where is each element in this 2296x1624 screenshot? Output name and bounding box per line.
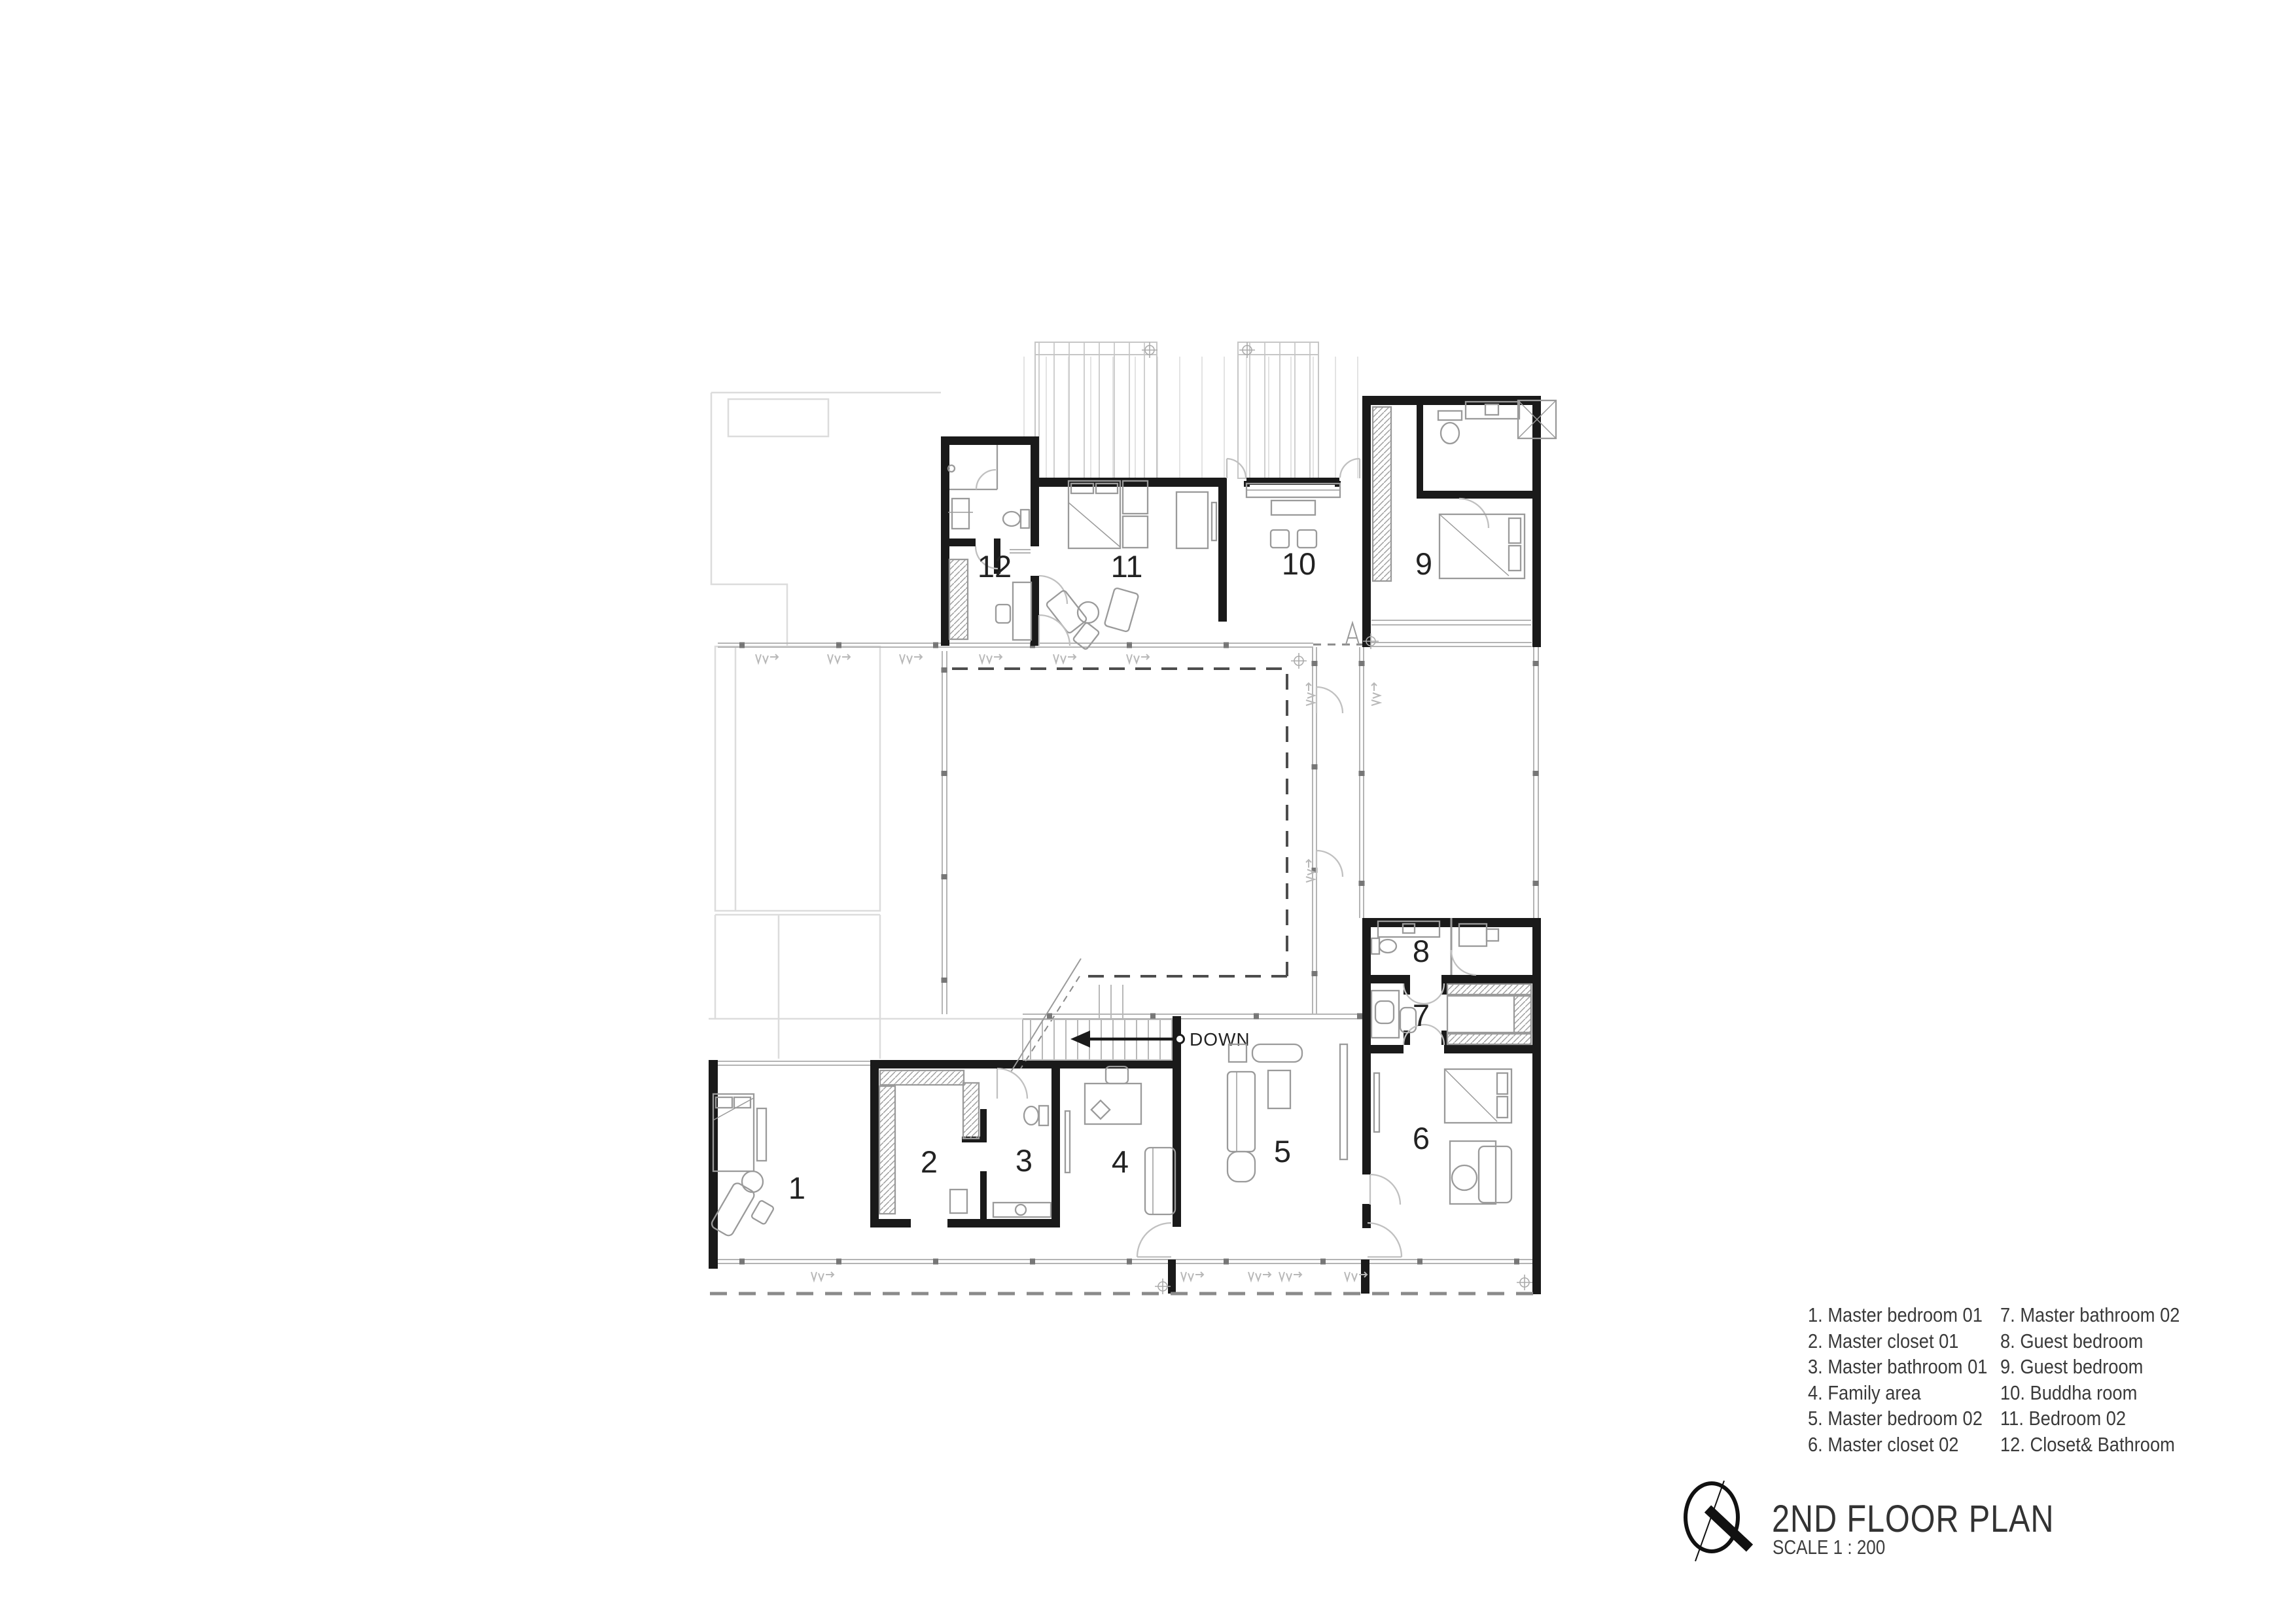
closet-hanger-strip <box>879 1086 895 1214</box>
legend-item: 3. Master bathroom 01 <box>1808 1354 1977 1380</box>
side-table-icon <box>742 1171 763 1192</box>
room-1-furniture <box>710 1094 774 1237</box>
closet-hanger-strip <box>1373 407 1391 581</box>
stool-icon <box>950 1190 967 1213</box>
tv-panel-icon <box>1065 1111 1070 1173</box>
tv-cabinet-icon <box>1340 1044 1347 1159</box>
roof-panel-west <box>1035 342 1157 478</box>
room-legend: 1. Master bedroom 01 2. Master closet 01… <box>1808 1302 2204 1457</box>
room-label-8: 8 <box>1413 934 1430 968</box>
legend-item: 8. Guest bedroom <box>2000 1328 2180 1354</box>
room-label-2: 2 <box>921 1144 938 1179</box>
room-label-12: 12 <box>978 549 1012 584</box>
legend-item: 12. Closet& Bathroom <box>2000 1432 2180 1458</box>
floor-plan-page: { "plan": { "down_label": "DOWN", "rooms… <box>0 0 2296 1624</box>
legend-item: 5. Master bedroom 02 <box>1808 1405 1977 1432</box>
down-arrow <box>1070 1031 1184 1048</box>
corridor-door-arcs <box>1316 687 1343 877</box>
room-label-5: 5 <box>1274 1134 1291 1169</box>
bench-icon <box>757 1108 766 1161</box>
chair-icon <box>1106 1067 1128 1084</box>
bed-icon <box>713 1094 754 1171</box>
coffee-table-icon <box>1268 1070 1290 1108</box>
toilet-icon <box>1024 1106 1048 1125</box>
roof-panel-east <box>1238 342 1318 478</box>
toilet-icon <box>1371 938 1396 954</box>
floor-cushion-icon <box>1271 530 1289 548</box>
room-label-7: 7 <box>1413 998 1430 1033</box>
roof-edge-dashed <box>710 644 1541 1294</box>
room-label-1: 1 <box>788 1171 805 1205</box>
roof-stripe-area <box>1017 342 1362 478</box>
room-label-4: 4 <box>1112 1144 1129 1179</box>
chair-icon <box>1487 929 1498 941</box>
floor-cushion-icon <box>1298 530 1316 548</box>
room-label-9: 9 <box>1415 546 1432 581</box>
legend-item: 4. Family area <box>1808 1380 1977 1406</box>
legend-column-2: 7. Master bathroom 02 8. Guest bedroom 9… <box>2000 1302 2204 1457</box>
side-table-icon <box>1452 1165 1477 1190</box>
closet-hanger-strip <box>949 559 968 639</box>
courtyard-dashed-outline <box>952 669 1287 976</box>
room-6-furniture <box>1370 1069 1511 1205</box>
desk-icon <box>1085 1084 1141 1124</box>
closet-hanger-strip <box>1447 984 1531 995</box>
room-label-6: 6 <box>1413 1121 1430 1156</box>
legend-item: 6. Master closet 02 <box>1808 1432 1977 1458</box>
room-label-10: 10 <box>1282 546 1316 581</box>
sofa-icon <box>1227 1072 1255 1182</box>
desk-icon <box>1459 924 1487 946</box>
tv-panel-icon <box>1374 1073 1379 1132</box>
closet-hanger-strip <box>880 1070 964 1085</box>
room-7-fixtures <box>1371 983 1531 1045</box>
legend-column-1: 1. Master bedroom 01 2. Master closet 01… <box>1808 1302 2000 1457</box>
compass-north-icon <box>1680 1474 1769 1576</box>
drawing-title: 2ND FLOOR PLAN <box>1772 1497 2054 1541</box>
sink-icon <box>1375 1001 1394 1023</box>
sofa-icon <box>1145 1148 1175 1214</box>
legend-item: 11. Bedroom 02 <box>2000 1405 2180 1432</box>
room-label-3: 3 <box>1016 1143 1033 1178</box>
bed-icon <box>1445 1069 1511 1123</box>
legend-item: 7. Master bathroom 02 <box>2000 1302 2180 1328</box>
sink-icon <box>1016 1205 1026 1215</box>
legend-item: 2. Master closet 01 <box>1808 1328 1977 1354</box>
drawing-scale: SCALE 1 : 200 <box>1773 1536 1885 1559</box>
daybed-icon <box>1252 1044 1302 1062</box>
legend-item: 9. Guest bedroom <box>2000 1354 2180 1380</box>
ottoman-icon <box>751 1200 775 1225</box>
down-label: DOWN <box>1190 1029 1250 1050</box>
room-label-11: 11 <box>1111 549 1143 584</box>
closet-hanger-strip <box>1447 1034 1531 1044</box>
room-5-furniture <box>1227 1044 1402 1257</box>
legend-item: 1. Master bedroom 01 <box>1808 1302 1977 1328</box>
section-mark-icon <box>1346 623 1359 644</box>
closet-hanger-strip <box>963 1083 979 1139</box>
rug-icon <box>1450 1141 1496 1204</box>
legend-item: 10. Buddha room <box>2000 1380 2180 1406</box>
low-table-icon <box>1271 501 1315 515</box>
decor-icon <box>1091 1101 1110 1119</box>
